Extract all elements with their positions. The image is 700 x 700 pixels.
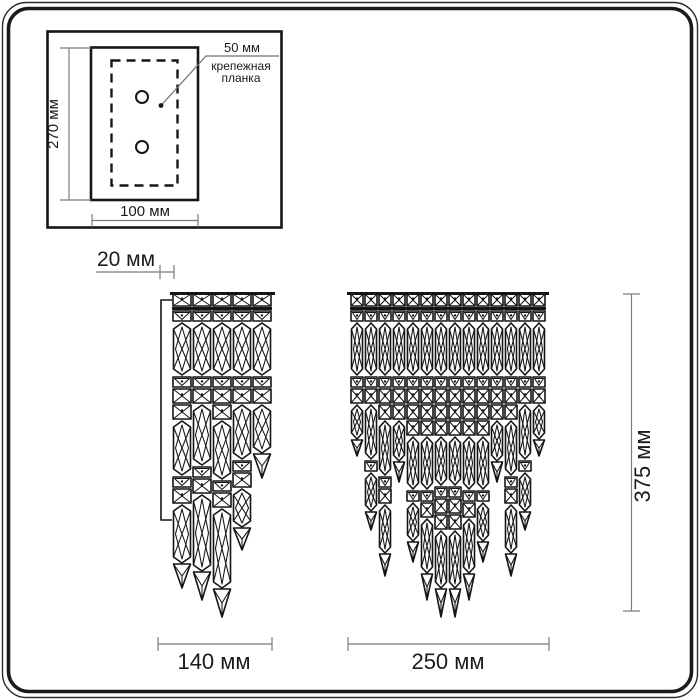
mounting-plate-inset: 270 мм 100 мм 50 мм крепежная планка [45,32,282,228]
crystal-strand [392,294,406,482]
crystal-strand [172,294,192,588]
crystal-strand [448,294,462,617]
screw-hole-top [136,91,148,103]
crystal-strand [434,294,448,617]
screw-hole-bottom [136,141,148,153]
crystal-strand [476,294,490,562]
plate-height-dimension: 270 мм [45,48,91,200]
crystal-strand [504,294,518,576]
crystal-strand [518,294,532,530]
crystal-strand [406,294,420,562]
crystal-strand [252,294,272,478]
plate-height-label: 270 мм [45,99,62,149]
plate-offset-label: 50 мм [224,40,260,55]
front-width-label: 250 мм [411,649,484,674]
plate-width-dimension: 100 мм [92,203,198,227]
wall-plate [161,300,172,520]
height-dimension: 375 мм [623,294,655,611]
front-width-dimension: 250 мм [348,637,549,674]
crystal-strand [490,294,504,482]
dimension-diagram: 270 мм 100 мм 50 мм крепежная планка 20 … [0,0,700,700]
crystal-strand [212,294,232,617]
front-view-drawing [347,294,549,618]
plate-width-label: 100 мм [120,203,170,220]
depth-dimension: 20 мм [96,248,174,279]
mounting-plate-dashed-outline [112,61,178,186]
crystal-strand [364,294,378,530]
side-width-dimension: 140 мм [158,637,272,674]
page-border [3,3,698,698]
crystal-strand [350,294,364,456]
side-view-drawing [161,294,275,618]
crystal-strand [378,294,392,576]
mounting-plate-outline [91,48,198,201]
depth-label: 20 мм [97,248,155,271]
crystal-strand [192,294,212,600]
height-label: 375 мм [630,429,655,502]
crystal-strand [420,294,434,600]
page-border-outer [3,3,698,698]
plate-caption-line2: планка [222,71,261,85]
crystal-strand [532,294,546,456]
crystal-strand [232,294,252,550]
leader-dot [159,103,164,108]
side-width-label: 140 мм [177,649,250,674]
crystal-strand [462,294,476,600]
